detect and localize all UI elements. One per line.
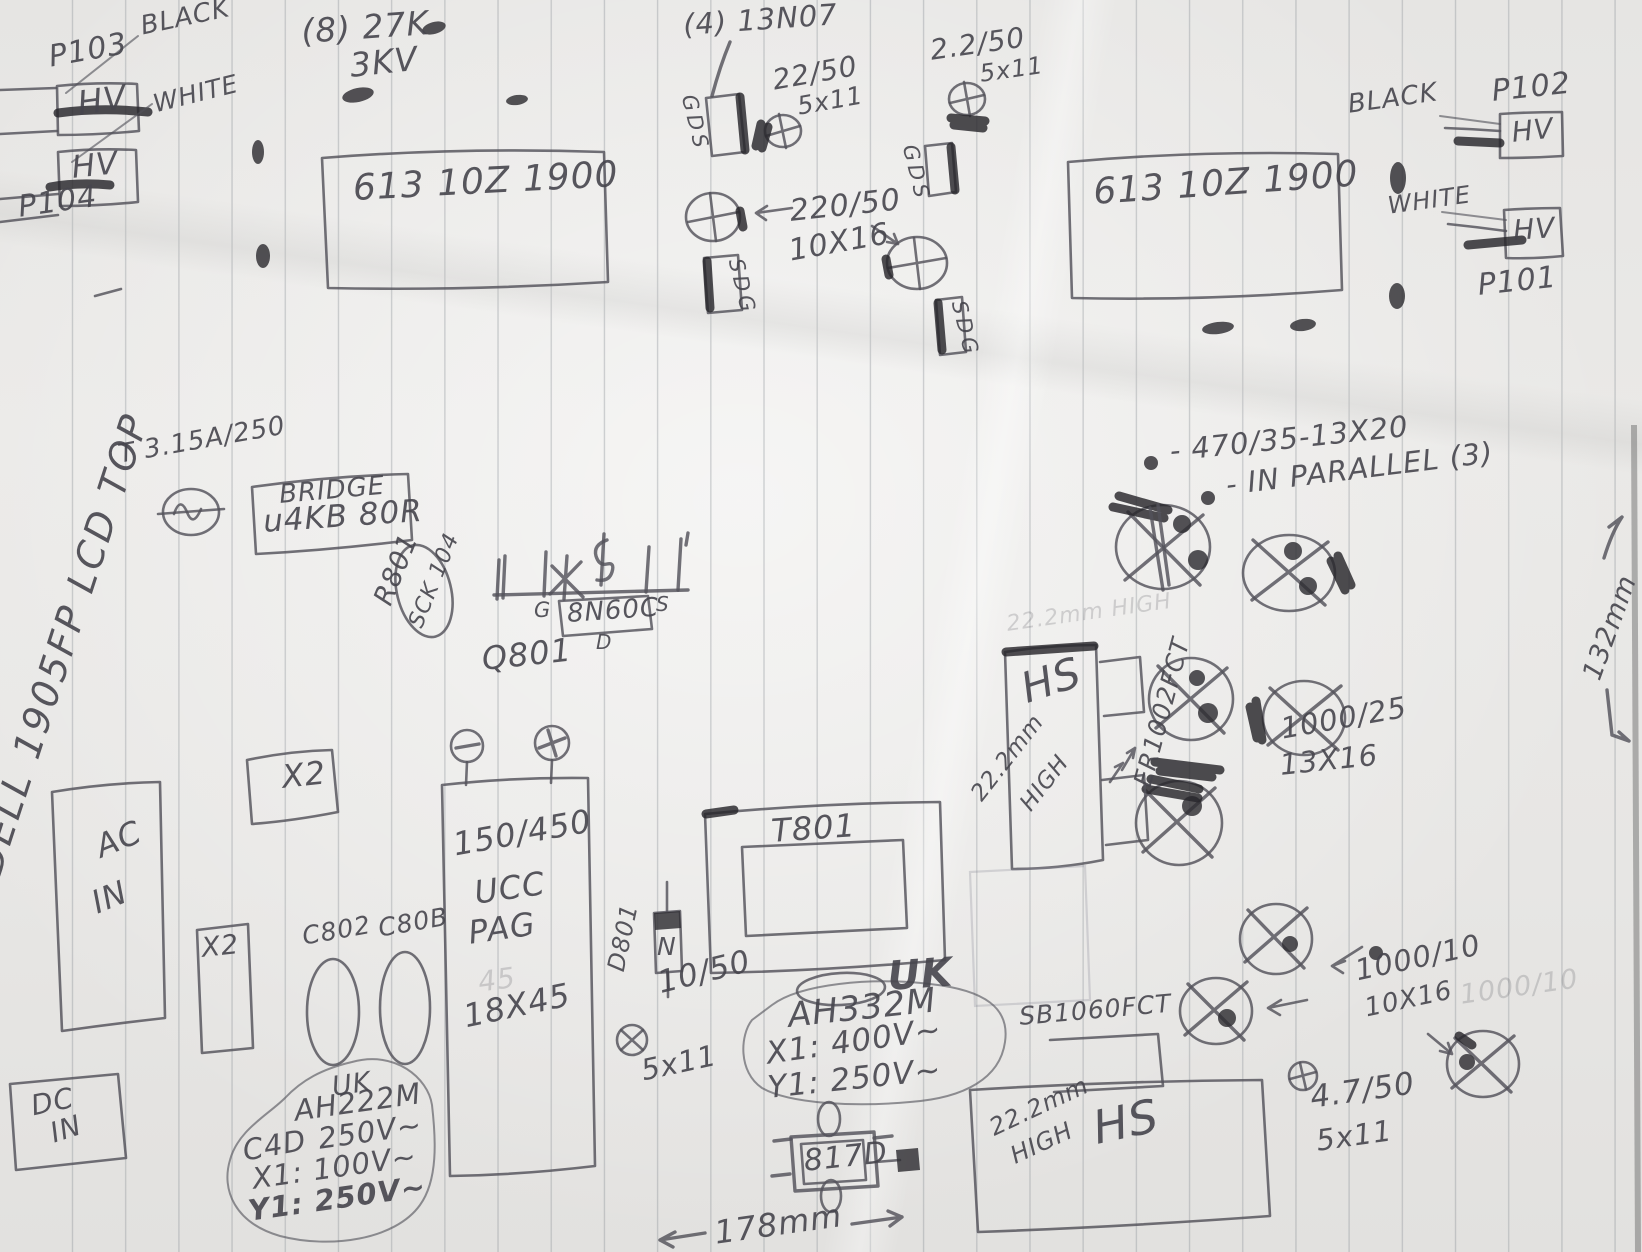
q801-pin-s: S	[656, 592, 670, 616]
bulk-capacitor-box	[442, 726, 595, 1176]
label-hv-2: HV	[70, 145, 120, 186]
x2-boxes	[197, 750, 338, 1053]
label-t801: T801	[770, 806, 857, 850]
label-hv-1: HV	[75, 77, 129, 122]
capacitor-10-50	[617, 1025, 647, 1055]
x2-box-label-a: X2	[280, 753, 328, 795]
fuse-symbol	[158, 489, 224, 535]
note-3kv: 3KV	[348, 39, 420, 85]
scanned-sketch-page: P103 BLACK HV WHITE HV P104 (8) 27K 3KV …	[0, 0, 1642, 1252]
q801-pin-g: G	[534, 598, 551, 622]
q801-part-number: 8N60C	[566, 593, 660, 629]
capacitor-22-50	[756, 114, 801, 148]
q801-pin-d: D	[596, 630, 612, 654]
label-hv-3: HV	[1510, 112, 1555, 149]
diode-n-marking: N	[657, 932, 677, 961]
label-hv-4: HV	[1512, 211, 1556, 247]
capacitor-2-2-50	[949, 82, 985, 128]
x2-box-label-b: X2	[200, 929, 241, 964]
